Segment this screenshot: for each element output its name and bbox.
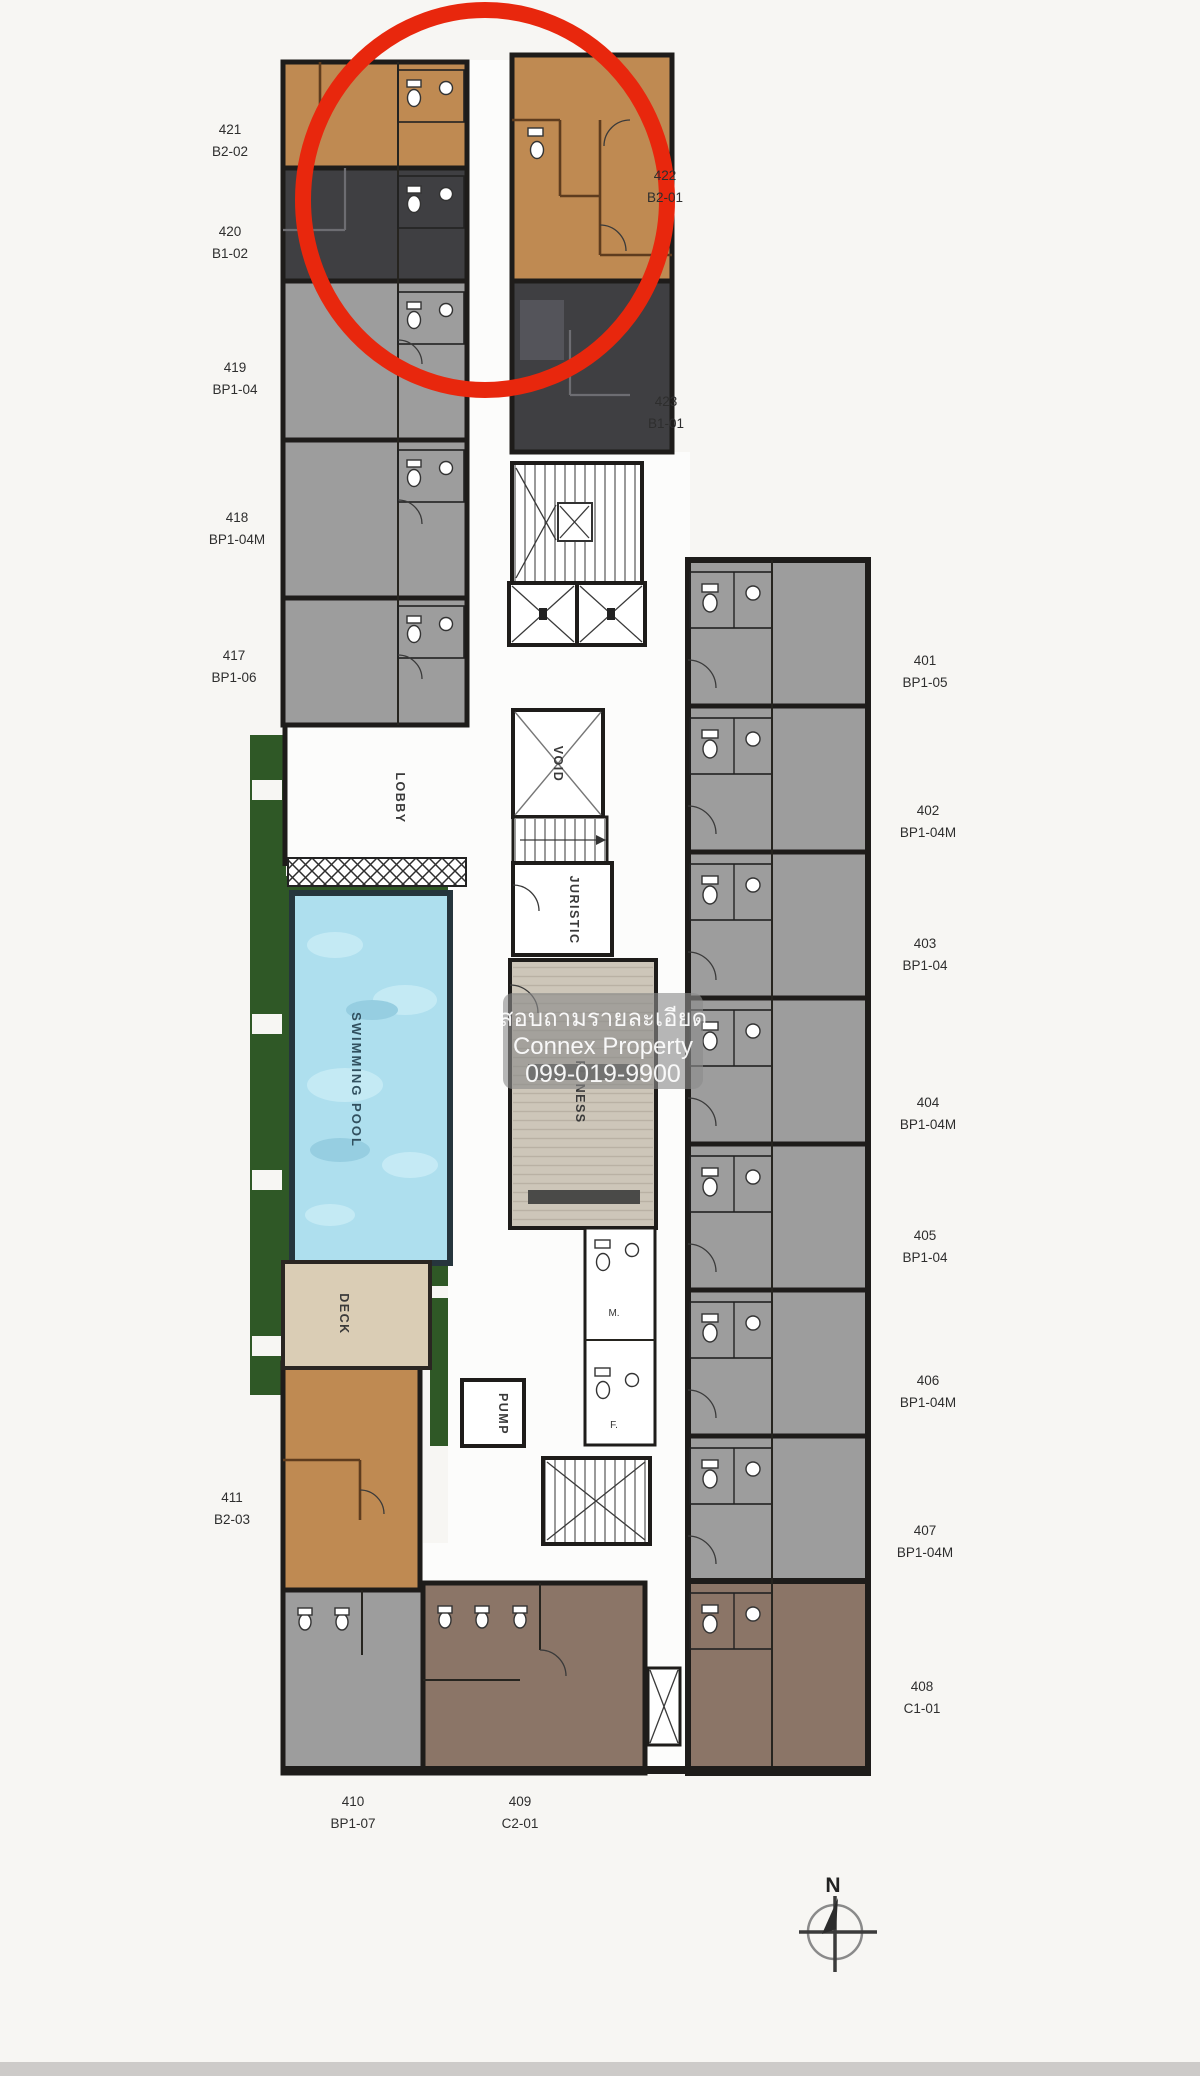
right-wing-units <box>688 560 868 1773</box>
watermark-line3: 099-019-9900 <box>525 1060 681 1088</box>
stairs-bottom <box>543 1458 650 1544</box>
svg-text:BP1-04: BP1-04 <box>902 1250 948 1265</box>
svg-text:BP1-04M: BP1-04M <box>900 825 956 840</box>
right-wing-block <box>688 560 868 1581</box>
restrooms: M. F. <box>585 1228 655 1445</box>
stairs-mid <box>513 817 607 863</box>
deck-label: DECK <box>337 1293 351 1334</box>
floor-plan-drawing: VOID JURISTIC FITNESS M. F. PUMP <box>0 0 1200 2076</box>
watermark: สอบถามรายละเอียด Connex Property 099-019… <box>499 993 707 1089</box>
pump-room: PUMP <box>462 1380 524 1446</box>
swimming-pool: SWIMMING POOL <box>292 893 450 1263</box>
svg-text:422: 422 <box>654 168 677 183</box>
room-unit-418 <box>283 440 467 598</box>
male-restroom-label: M. <box>608 1308 619 1319</box>
svg-text:BP1-04: BP1-04 <box>212 382 258 397</box>
void-room: VOID <box>513 710 603 817</box>
svg-text:418: 418 <box>226 510 249 525</box>
watermark-line1: สอบถามรายละเอียด <box>499 1005 707 1032</box>
svg-text:B2-03: B2-03 <box>214 1512 250 1527</box>
svg-text:B1-01: B1-01 <box>648 416 684 431</box>
deck: DECK <box>283 1262 430 1368</box>
stair-core-top <box>512 463 642 583</box>
room-unit-417 <box>283 598 467 725</box>
svg-text:401: 401 <box>914 653 937 668</box>
svg-text:BP1-07: BP1-07 <box>330 1816 375 1831</box>
svg-text:B2-01: B2-01 <box>647 190 683 205</box>
room-unit-409 <box>423 1583 645 1773</box>
svg-text:BP1-04: BP1-04 <box>902 958 948 973</box>
svg-text:BP1-06: BP1-06 <box>211 670 256 685</box>
female-restroom-label: F. <box>610 1420 618 1431</box>
svg-text:411: 411 <box>221 1490 243 1505</box>
svg-text:402: 402 <box>917 803 940 818</box>
svg-text:408: 408 <box>911 1679 934 1694</box>
svg-text:406: 406 <box>917 1373 940 1388</box>
svg-text:417: 417 <box>223 648 246 663</box>
swimming-pool-label: SWIMMING POOL <box>349 1012 364 1148</box>
lobby-label: LOBBY <box>393 772 407 823</box>
svg-text:BP1-04M: BP1-04M <box>209 532 265 547</box>
svg-text:404: 404 <box>917 1095 940 1110</box>
svg-text:407: 407 <box>914 1523 937 1538</box>
svg-text:BP1-05: BP1-05 <box>902 675 947 690</box>
compass-north-label: N <box>825 1874 840 1897</box>
svg-text:410: 410 <box>342 1794 365 1809</box>
juristic-room: JURISTIC <box>513 863 612 955</box>
elevators-top <box>509 583 645 645</box>
svg-text:423: 423 <box>655 394 678 409</box>
svg-text:C1-01: C1-01 <box>904 1701 941 1716</box>
svg-text:403: 403 <box>914 936 937 951</box>
svg-text:C2-01: C2-01 <box>502 1816 539 1831</box>
svg-text:405: 405 <box>914 1228 937 1243</box>
svg-text:B1-02: B1-02 <box>212 246 248 261</box>
svg-text:BP1-04M: BP1-04M <box>900 1395 956 1410</box>
svg-text:421: 421 <box>219 122 242 137</box>
svg-text:409: 409 <box>509 1794 532 1809</box>
pump-label: PUMP <box>496 1393 510 1435</box>
svg-text:B2-02: B2-02 <box>212 144 248 159</box>
room-unit-411 <box>283 1363 420 1590</box>
room-unit-422 <box>512 55 672 281</box>
floor-plan-page: VOID JURISTIC FITNESS M. F. PUMP <box>0 0 1200 2076</box>
svg-text:419: 419 <box>224 360 247 375</box>
svg-text:BP1-04M: BP1-04M <box>900 1117 956 1132</box>
hatched-walkway <box>288 858 466 886</box>
watermark-line2: Connex Property <box>513 1033 693 1060</box>
bottom-edge-band <box>0 2062 1200 2076</box>
svg-text:BP1-04M: BP1-04M <box>897 1545 953 1560</box>
svg-text:420: 420 <box>219 224 242 239</box>
juristic-label: JURISTIC <box>567 876 581 945</box>
void-label: VOID <box>551 746 565 783</box>
